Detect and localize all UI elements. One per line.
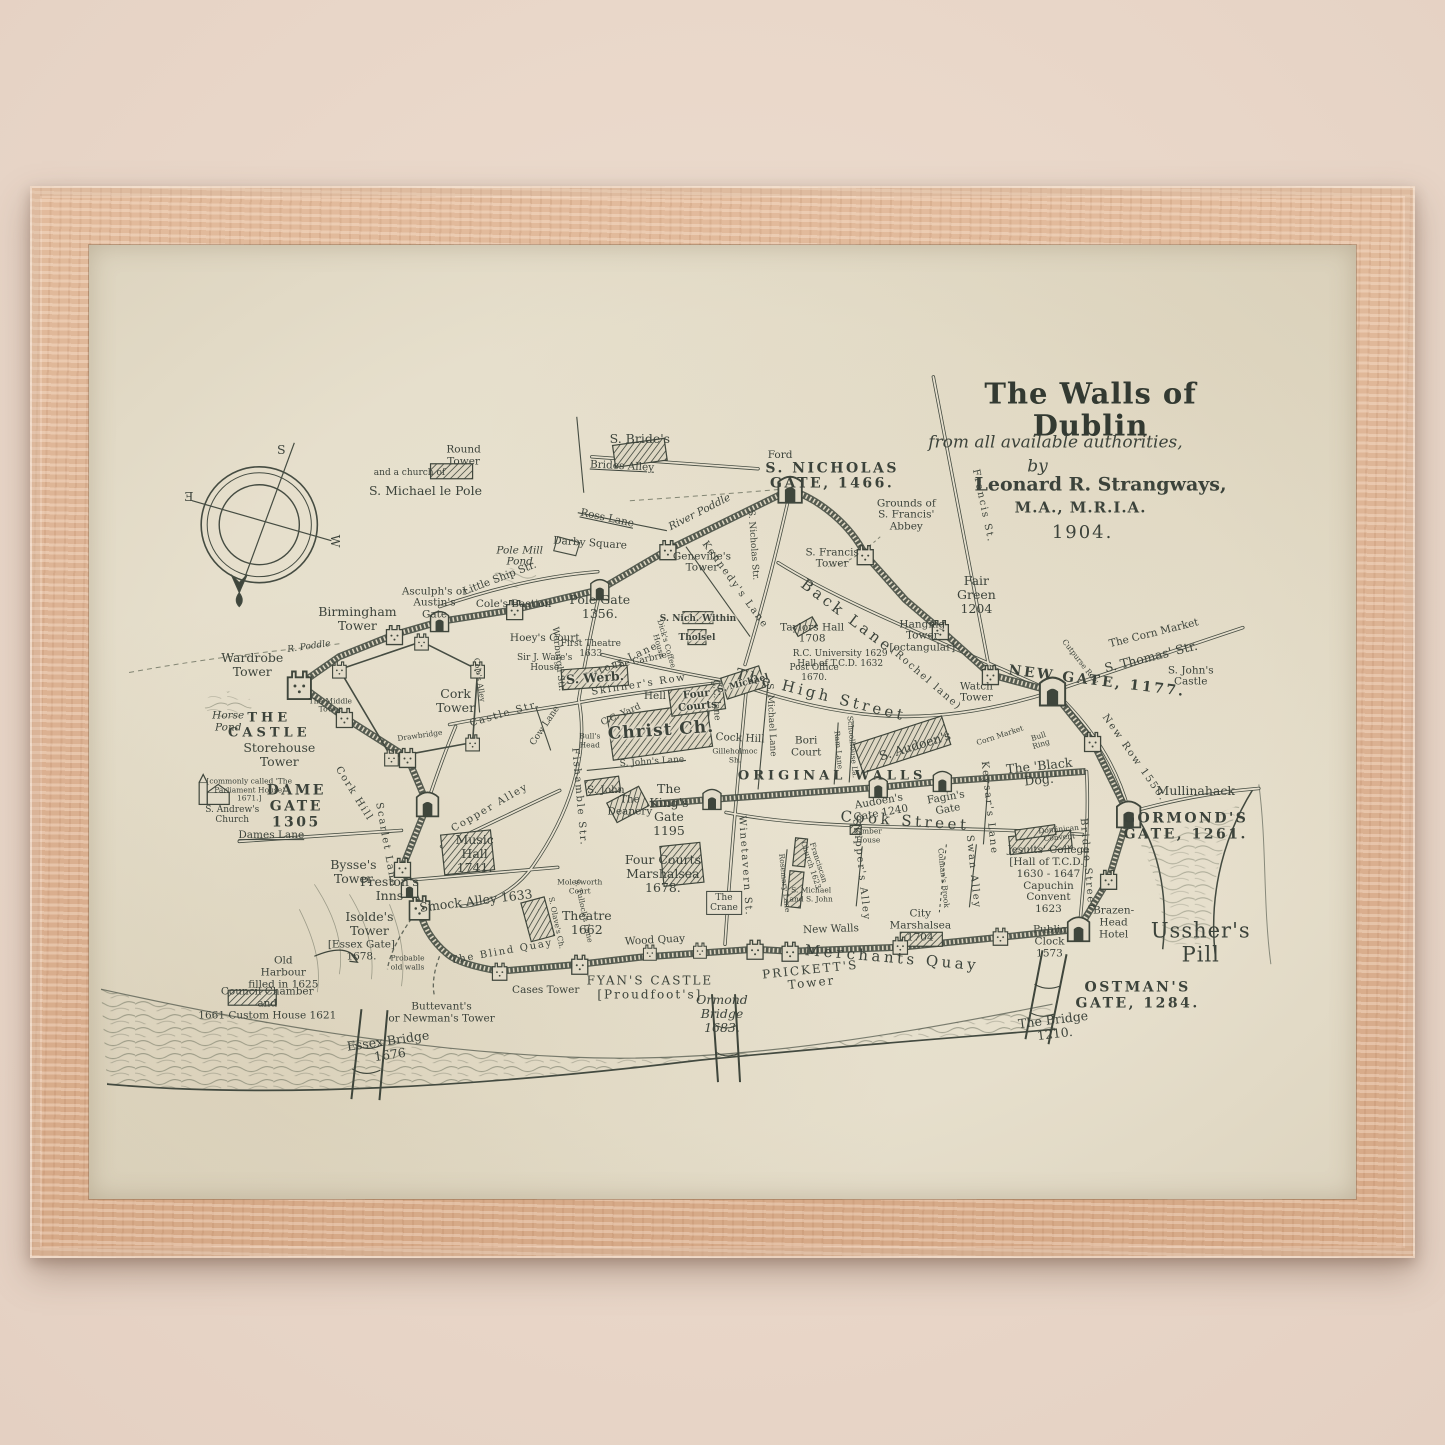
map-label: Isolde's Tower (345, 910, 393, 938)
map-labels: SƎWRound Towerand a church ofS. Michael … (89, 245, 1356, 1199)
map-label: Cork Tower (436, 687, 475, 715)
map-label: OSTMAN'S GATE, 1284. (1076, 981, 1200, 1012)
wall-background: The Walls of Dublin from all available a… (0, 0, 1445, 1445)
map-paper: The Walls of Dublin from all available a… (89, 245, 1356, 1199)
map-label: Darby Square (553, 535, 627, 552)
map-label: Ross Lane (579, 507, 635, 530)
map-label: Fishamble Str. (569, 748, 589, 847)
map-label: FYAN'S CASTLE [Proudfoot's] (587, 975, 714, 1002)
map-label: Castle Str. (468, 698, 541, 729)
map-label: Ormond Bridge 1683. (696, 993, 748, 1035)
map-label: S. Michael le Pole (369, 484, 482, 498)
map-label: Taylors Hall 1708 (780, 622, 844, 646)
map-label: S. NICHOLAS GATE, 1466. (765, 461, 899, 492)
map-label: S. Andrew's Church (205, 805, 259, 825)
map-label: Tholsel (679, 633, 716, 643)
map-label: Copper Alley (449, 782, 530, 835)
map-label: Asculph's or Austin's Gate (402, 586, 467, 621)
map-label: New Walls (803, 923, 859, 937)
map-label: S. Michael Lane (764, 683, 778, 757)
map-label: Wardrobe Tower (221, 651, 283, 679)
map-label: [Essex Gate] 1678. (328, 940, 395, 964)
map-label: Cole's Bastion (476, 599, 552, 611)
map-label: Ram Lane (832, 731, 844, 770)
map-label: The Deanery (607, 795, 652, 819)
map-label: Keysar's Lane (979, 761, 1000, 856)
map-label: DAME GATE 1305 (267, 784, 326, 831)
map-label: and a church of (374, 468, 445, 478)
map-label: Wood Quay (624, 934, 685, 949)
map-label: Mullinahack (1157, 784, 1235, 798)
map-label: Gilleholmoc Sh. (712, 748, 757, 765)
map-label: Bori Court (791, 736, 821, 760)
map-label: Cork Hill (333, 765, 375, 824)
map-label: The Blind Quay (450, 938, 554, 967)
map-label: The 'Black Dog.' (1005, 756, 1074, 791)
map-label: Rosemary Lane (777, 854, 792, 914)
map-label: Fair Green 1204 (957, 574, 996, 616)
map-label: Colman's Brook (936, 848, 951, 909)
map-label: Bull Ring (1028, 731, 1050, 752)
map-label: S. Bride's (610, 432, 670, 446)
map-label: ORIGINAL WALLS (738, 770, 927, 785)
map-label: Probable old walls (390, 955, 424, 972)
map-label: River Poddle (667, 492, 733, 533)
map-label: Hanging Tower [octangular] (889, 619, 955, 654)
map-label: Jesuits' College [Hall of T.C.D.] 1630 -… (1008, 845, 1090, 916)
map-label: Post Office 1670. (790, 662, 839, 682)
map-label: Christ Ch. (607, 718, 715, 744)
map-label: Watch Tower (960, 681, 993, 705)
map-label: Grounds of S. Francis' Abbey (877, 498, 936, 533)
map-label: GORMOND'S GATE, 1261. (1123, 812, 1248, 843)
map-label: R. Poddle (287, 639, 331, 655)
map-label: The Middle Tower (309, 697, 352, 714)
map-label: S. Nich. Within (660, 614, 736, 624)
map-label: Dames Lane (238, 831, 304, 843)
map-label: Horse Pond (212, 711, 244, 735)
map-label: W (328, 534, 342, 547)
map-label: Bull's Head (579, 733, 600, 750)
map-label: Smock Alley 1633 (418, 887, 533, 915)
map-label: S. Audoen's (878, 729, 953, 764)
map-label: S. Nicholas Str. (746, 509, 761, 580)
map-label: The Crane (706, 891, 742, 915)
map-label: S. John's Castle (1168, 665, 1214, 689)
map-label: Francis St. (970, 468, 997, 544)
map-label: Council Chamber and 1661 Custom House 16… (198, 987, 336, 1022)
map-label: City Marshalsea 1704 (889, 909, 951, 944)
map-label: Drawbridge (396, 729, 442, 744)
map-label: The King's Gate 1195 (649, 782, 688, 838)
map-label: Ussher's Pill (1151, 920, 1251, 967)
map-label: S. Francis Tower (805, 547, 858, 571)
map-label: S (277, 443, 286, 457)
picture-frame: The Walls of Dublin from all available a… (30, 186, 1415, 1258)
map-label: Theatre 1662 (562, 909, 612, 937)
map-label: Buttevant's or Newman's Tower (388, 1001, 494, 1025)
map-label: Cock Hill (715, 732, 765, 746)
map-label: Preston's Inns (360, 875, 419, 903)
map-label: Ǝ (185, 490, 194, 504)
map-label: Swan Alley (964, 835, 983, 910)
map-label: Brides Alley (589, 459, 654, 474)
map-label: Franciscan Church 1623 (799, 838, 830, 890)
map-label: (Rochel lane) (888, 645, 964, 713)
map-label: Hell (644, 691, 666, 703)
map-label: C.C. lane (710, 679, 722, 720)
map-label: Brazen- Head Hotel (1093, 906, 1134, 941)
map-label: Music Hall 1741. (455, 833, 493, 875)
map-label: Round Tower (446, 444, 480, 468)
map-label: Pole Gate 1356. (569, 593, 630, 621)
map-label: Dominican Convent (1037, 824, 1079, 844)
map-label: Birmingham Tower (318, 605, 396, 633)
map-label: Public Clock 1573 (1033, 925, 1066, 960)
map-label: Storehouse Tower (243, 741, 315, 769)
map-label: Timber House (855, 828, 882, 845)
map-label: The Bridge 1210. (1017, 1009, 1090, 1045)
map-label: S. John's Lane (619, 755, 684, 770)
map-label: Essex Bridge 1676 (346, 1029, 432, 1068)
map-label: PRICKETT'S Tower (762, 959, 861, 996)
map-label: S. Michael and S. John (789, 887, 832, 904)
map-label: Four Courts Marshalsea 1678. (625, 853, 701, 895)
map-label: Corn Market (976, 725, 1025, 748)
map-label: Cases Tower (512, 985, 579, 997)
